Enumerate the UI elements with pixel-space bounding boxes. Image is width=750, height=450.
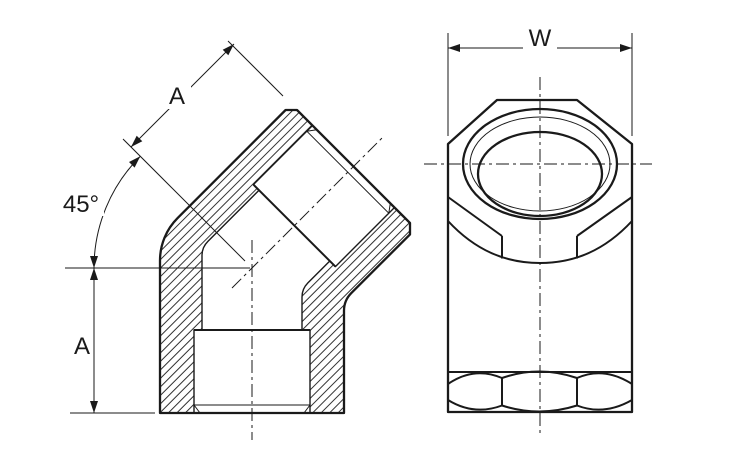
arrowhead [129,156,140,167]
label-width: W [529,25,552,52]
label-angle: 45° [63,191,99,218]
label-length-upper: A [169,83,185,110]
dim-length-lower: A [65,268,250,413]
drawing-canvas: A A 45° [0,0,750,450]
arrowhead [90,268,98,280]
arrowhead [90,401,98,413]
extension-line-angled-face [228,41,283,96]
dim-angle: 45° [58,156,140,268]
section-wall-crotch-band [302,208,410,414]
technical-drawing-45deg-elbow: A A 45° [0,0,750,450]
arrowhead [448,44,460,52]
section-wall-outer-band [160,110,313,413]
arrowhead [90,256,98,268]
elbow-end-view: W [424,24,652,437]
label-length-lower: A [74,333,90,360]
arrowhead [620,44,632,52]
elbow-section-view: A A 45° [58,41,410,440]
